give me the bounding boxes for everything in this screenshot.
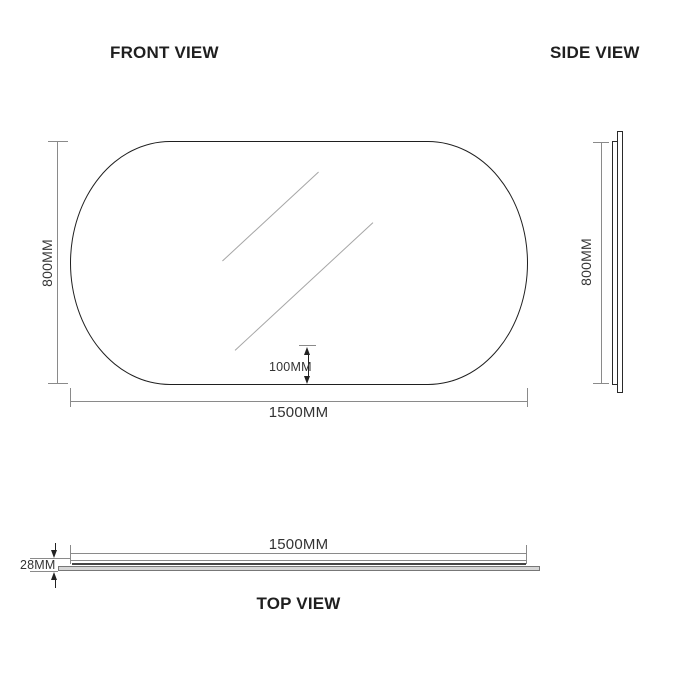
top-thickness-label: 28MM	[20, 558, 56, 572]
top-panel-edge-right	[526, 545, 527, 564]
top-panel-inner-line	[70, 560, 526, 561]
front-width-label: 1500MM	[70, 404, 527, 421]
side-height-tick-top	[593, 142, 609, 143]
front-height-tick-bottom	[48, 383, 68, 384]
thickness-arrow-shaft-bottom	[55, 580, 56, 588]
side-height-tick-bottom	[593, 383, 609, 384]
front-view: FRONT VIEW 800MM 1500MM 100MM	[0, 0, 560, 430]
mirror-side-glass	[612, 141, 618, 385]
technical-drawing-sheet: FRONT VIEW 800MM 1500MM 100MM SIDE VIEW	[0, 0, 700, 700]
front-view-title: FRONT VIEW	[110, 43, 219, 63]
side-height-label: 800MM	[578, 238, 594, 286]
mirror-front-outline	[70, 141, 528, 385]
top-panel-edge-left	[70, 545, 71, 564]
front-height-label: 800MM	[39, 239, 55, 287]
arrowhead-up-icon	[51, 572, 57, 580]
arrowhead-down-icon	[304, 376, 310, 384]
front-height-dimension-line	[57, 141, 58, 384]
top-view: 1500MM 28MM TOP VIEW	[0, 500, 700, 630]
top-width-label: 1500MM	[70, 536, 527, 553]
top-width-dimension-line	[70, 553, 527, 554]
side-height-dimension-line	[601, 142, 602, 384]
top-panel-bottom-line	[72, 563, 526, 565]
side-view: SIDE VIEW 800MM	[540, 0, 700, 430]
mirror-top-glass-strip	[58, 566, 540, 571]
front-offset-label: 100MM	[269, 360, 312, 374]
side-view-title: SIDE VIEW	[550, 43, 640, 63]
top-view-title: TOP VIEW	[70, 594, 527, 614]
front-width-dimension-line	[70, 401, 527, 402]
offset-cap-line	[299, 345, 316, 346]
front-height-tick-top	[48, 141, 68, 142]
